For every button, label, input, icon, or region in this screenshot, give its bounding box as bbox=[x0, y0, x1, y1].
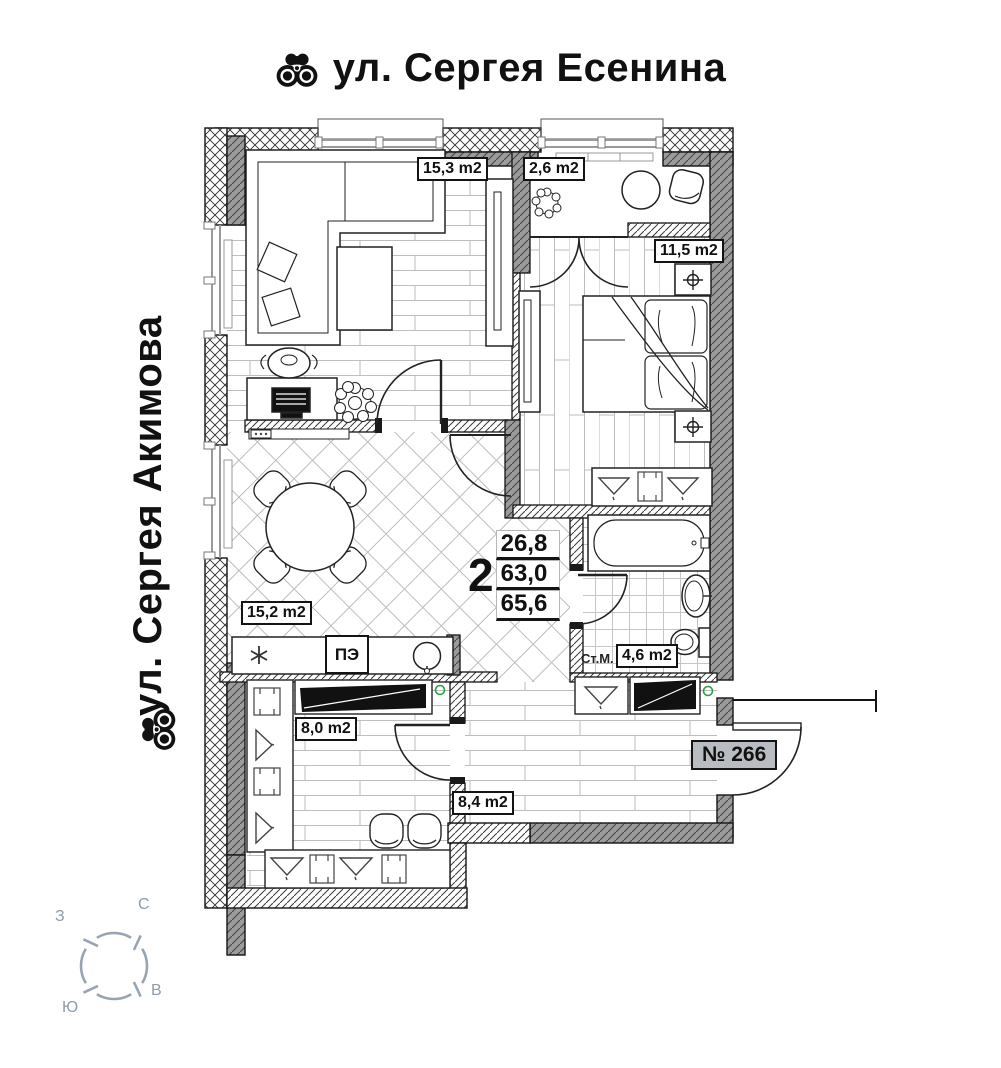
street-label-top: ул. Сергея Есенина bbox=[0, 46, 1001, 91]
room-label-kitchen: 15,2 m2 bbox=[241, 601, 312, 625]
room-label-dressing: 8,0 m2 bbox=[295, 717, 357, 741]
apartment-number-badge: № 266 bbox=[691, 740, 777, 770]
unit-living-area: 26,8 bbox=[496, 530, 560, 560]
room-label-bedroom: 11,5 m2 bbox=[654, 239, 724, 263]
exterior-landing-lines bbox=[733, 690, 876, 712]
room-label-bathroom: 4,6 m2 bbox=[616, 644, 678, 668]
compass-south: Ю bbox=[62, 999, 78, 1017]
unit-area-no-balcony: 63,0 bbox=[496, 560, 560, 590]
compass-west: З bbox=[55, 908, 65, 926]
unit-total-area: 65,6 bbox=[496, 590, 560, 620]
room-label-living: 15,3 m2 bbox=[417, 157, 488, 181]
room-label-balcony: 2,6 m2 bbox=[523, 157, 585, 181]
binoculars-icon bbox=[139, 708, 182, 752]
room-label-hall: 8,4 m2 bbox=[452, 791, 514, 815]
floor-plan-page: ул. Сергея Есенина ул. Сергея Акимова 15… bbox=[0, 0, 1001, 1068]
stove-symbol: ПЭ bbox=[325, 635, 369, 674]
street-name-top: ул. Сергея Есенина bbox=[333, 46, 727, 91]
unit-rooms-count: 2 bbox=[468, 552, 494, 598]
unit-areas-stack: 2 26,8 63,0 65,6 bbox=[468, 530, 560, 621]
compass-east: В bbox=[151, 982, 162, 1000]
binoculars-icon bbox=[275, 50, 319, 88]
street-label-left: ул. Сергея Акимова bbox=[126, 312, 171, 716]
compass-north: С bbox=[138, 896, 150, 914]
compass-rose bbox=[81, 933, 147, 999]
hallway-furniture bbox=[575, 677, 700, 714]
washing-machine-label: Ст.М. bbox=[581, 651, 614, 666]
